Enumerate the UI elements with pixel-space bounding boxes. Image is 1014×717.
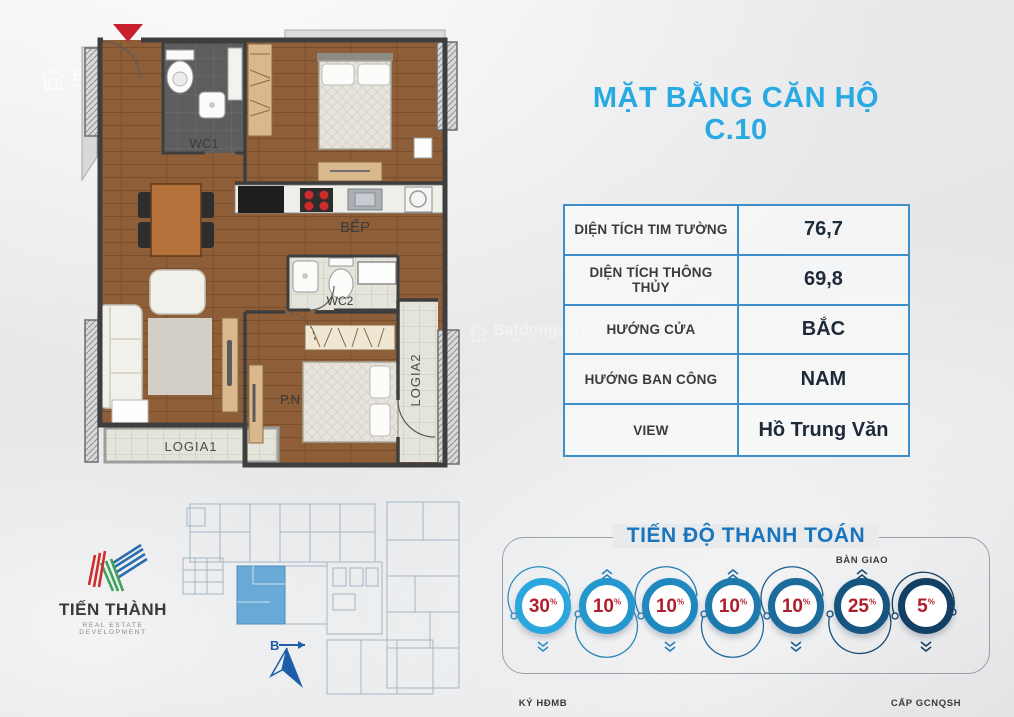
room-label-wc2: WC2 xyxy=(327,294,354,308)
sofa xyxy=(98,305,142,408)
step-label: KÝ HĐMB xyxy=(519,698,568,709)
compass-label: B xyxy=(270,638,279,653)
percent-value: 10 xyxy=(719,596,740,617)
payment-step: 25% BÀN GIAO xyxy=(834,578,890,634)
wardrobe xyxy=(248,44,272,136)
dining-table xyxy=(151,184,201,256)
payment-circle: 30% xyxy=(515,578,571,634)
row-label: HƯỚNG BAN CÔNG xyxy=(565,355,739,403)
payment-step: 10% xyxy=(642,578,698,634)
logo-name: TIẾN THÀNH xyxy=(48,600,178,620)
column xyxy=(438,330,459,464)
building-overview-plan: B xyxy=(175,498,465,706)
payment-step: 30% KÝ HĐMB xyxy=(515,578,571,634)
row-label: DIỆN TÍCH THÔNG THỦY xyxy=(565,256,739,304)
apartment-floor-plan: WC1 BẾP WC2 P.N LOGIA1 LOGIA2 xyxy=(52,22,467,482)
payment-step: 10% xyxy=(705,578,761,634)
room-label-logia2: LOGIA2 xyxy=(408,354,423,407)
payment-circle: 10% xyxy=(768,578,824,634)
chevron-down-icon xyxy=(538,642,548,651)
highlighted-unit xyxy=(237,566,285,624)
step-label: BÀN GIAO xyxy=(836,555,888,566)
table-row: DIỆN TÍCH THÔNG THỦY 69,8 xyxy=(565,256,908,306)
row-value: Hồ Trung Văn xyxy=(739,405,908,455)
room-label-bedroom: P.N xyxy=(280,392,300,407)
percent-value: 10 xyxy=(656,596,677,617)
pillow xyxy=(370,404,390,436)
house-icon xyxy=(468,323,488,343)
bed1-headboard xyxy=(317,53,393,61)
table-row: VIEW Hồ Trung Văn xyxy=(565,405,908,455)
payment-circle: 10% xyxy=(705,578,761,634)
page-title: MẶT BẰNG CĂN HỘ C.10 xyxy=(540,82,932,146)
brochure-page: Batdongsan by PropertyGuru Batdongsan by… xyxy=(0,0,1014,717)
side-table xyxy=(112,400,148,424)
payment-circle: 5% xyxy=(898,578,954,634)
payment-schedule: TIẾN ĐỘ THANH TOÁN xyxy=(502,537,990,674)
percent-unit: % xyxy=(614,597,621,606)
room-label-wc1: WC1 xyxy=(190,136,219,151)
dining-chair xyxy=(138,192,152,218)
pillow xyxy=(322,64,354,85)
payment-circle: 10% xyxy=(579,578,635,634)
wc1-toilet-tank xyxy=(166,50,194,60)
armchair xyxy=(150,270,205,314)
row-value: NAM xyxy=(739,355,908,403)
room-label-kitchen: BẾP xyxy=(340,219,370,236)
nightstand xyxy=(414,138,432,158)
percent-value: 30 xyxy=(529,596,550,617)
stove xyxy=(300,188,333,212)
dining-chair xyxy=(200,192,214,218)
row-value: BẮC xyxy=(739,306,908,354)
payment-step: 10% xyxy=(768,578,824,634)
bedroom-console xyxy=(249,365,263,443)
column xyxy=(85,48,99,136)
pillow xyxy=(358,64,390,85)
percent-unit: % xyxy=(550,597,557,606)
room-label-logia1: LOGIA1 xyxy=(165,439,218,454)
developer-logo: TIẾN THÀNH REAL ESTATE DEVELOPMENT xyxy=(48,537,178,636)
chevron-down-icon xyxy=(791,642,801,651)
table-row: DIỆN TÍCH TIM TƯỜNG 76,7 xyxy=(565,206,908,256)
chevron-down-icon xyxy=(665,642,675,651)
chevron-down-icon xyxy=(921,642,931,651)
percent-value: 10 xyxy=(593,596,614,617)
row-label: VIEW xyxy=(565,405,739,455)
wc2-toilet-tank xyxy=(329,258,353,266)
column xyxy=(85,320,98,462)
row-label: DIỆN TÍCH TIM TƯỜNG xyxy=(565,206,739,254)
logo-tagline: REAL ESTATE DEVELOPMENT xyxy=(48,622,178,636)
percent-unit: % xyxy=(740,597,747,606)
logo-mark xyxy=(77,537,149,593)
percent-value: 25 xyxy=(848,596,869,617)
wc1-shelf xyxy=(228,48,242,100)
fridge xyxy=(238,186,284,213)
dining-chair xyxy=(200,222,214,248)
percent-value: 5 xyxy=(917,596,928,617)
percent-unit: % xyxy=(869,597,876,606)
bath-cabinet xyxy=(358,262,396,284)
payment-step: 5% CẤP GCNQSH xyxy=(898,578,954,634)
payment-step: 10% xyxy=(579,578,635,634)
building-wing-top xyxy=(190,504,375,562)
table-row: HƯỚNG BAN CÔNG NAM xyxy=(565,355,908,405)
dining-chair xyxy=(138,222,152,248)
payment-circle: 10% xyxy=(642,578,698,634)
stair-block xyxy=(183,558,223,594)
percent-unit: % xyxy=(803,597,810,606)
page-title-line1: MẶT BẰNG CĂN HỘ xyxy=(540,82,932,114)
entrance-marker xyxy=(113,24,143,42)
table-row: HƯỚNG CỬA BẮC xyxy=(565,306,908,356)
payment-circle: 25% xyxy=(834,578,890,634)
row-value: 76,7 xyxy=(739,206,908,254)
step-label: CẤP GCNQSH xyxy=(891,698,961,709)
pillow xyxy=(370,366,390,398)
rug xyxy=(148,318,212,395)
page-title-line2: C.10 xyxy=(540,114,932,146)
tv xyxy=(227,340,232,386)
row-value: 69,8 xyxy=(739,256,908,304)
apartment-info-table: DIỆN TÍCH TIM TƯỜNG 76,7 DIỆN TÍCH THÔNG… xyxy=(563,204,910,457)
percent-unit: % xyxy=(677,597,684,606)
percent-unit: % xyxy=(928,597,935,606)
percent-value: 10 xyxy=(782,596,803,617)
row-label: HƯỚNG CỬA xyxy=(565,306,739,354)
